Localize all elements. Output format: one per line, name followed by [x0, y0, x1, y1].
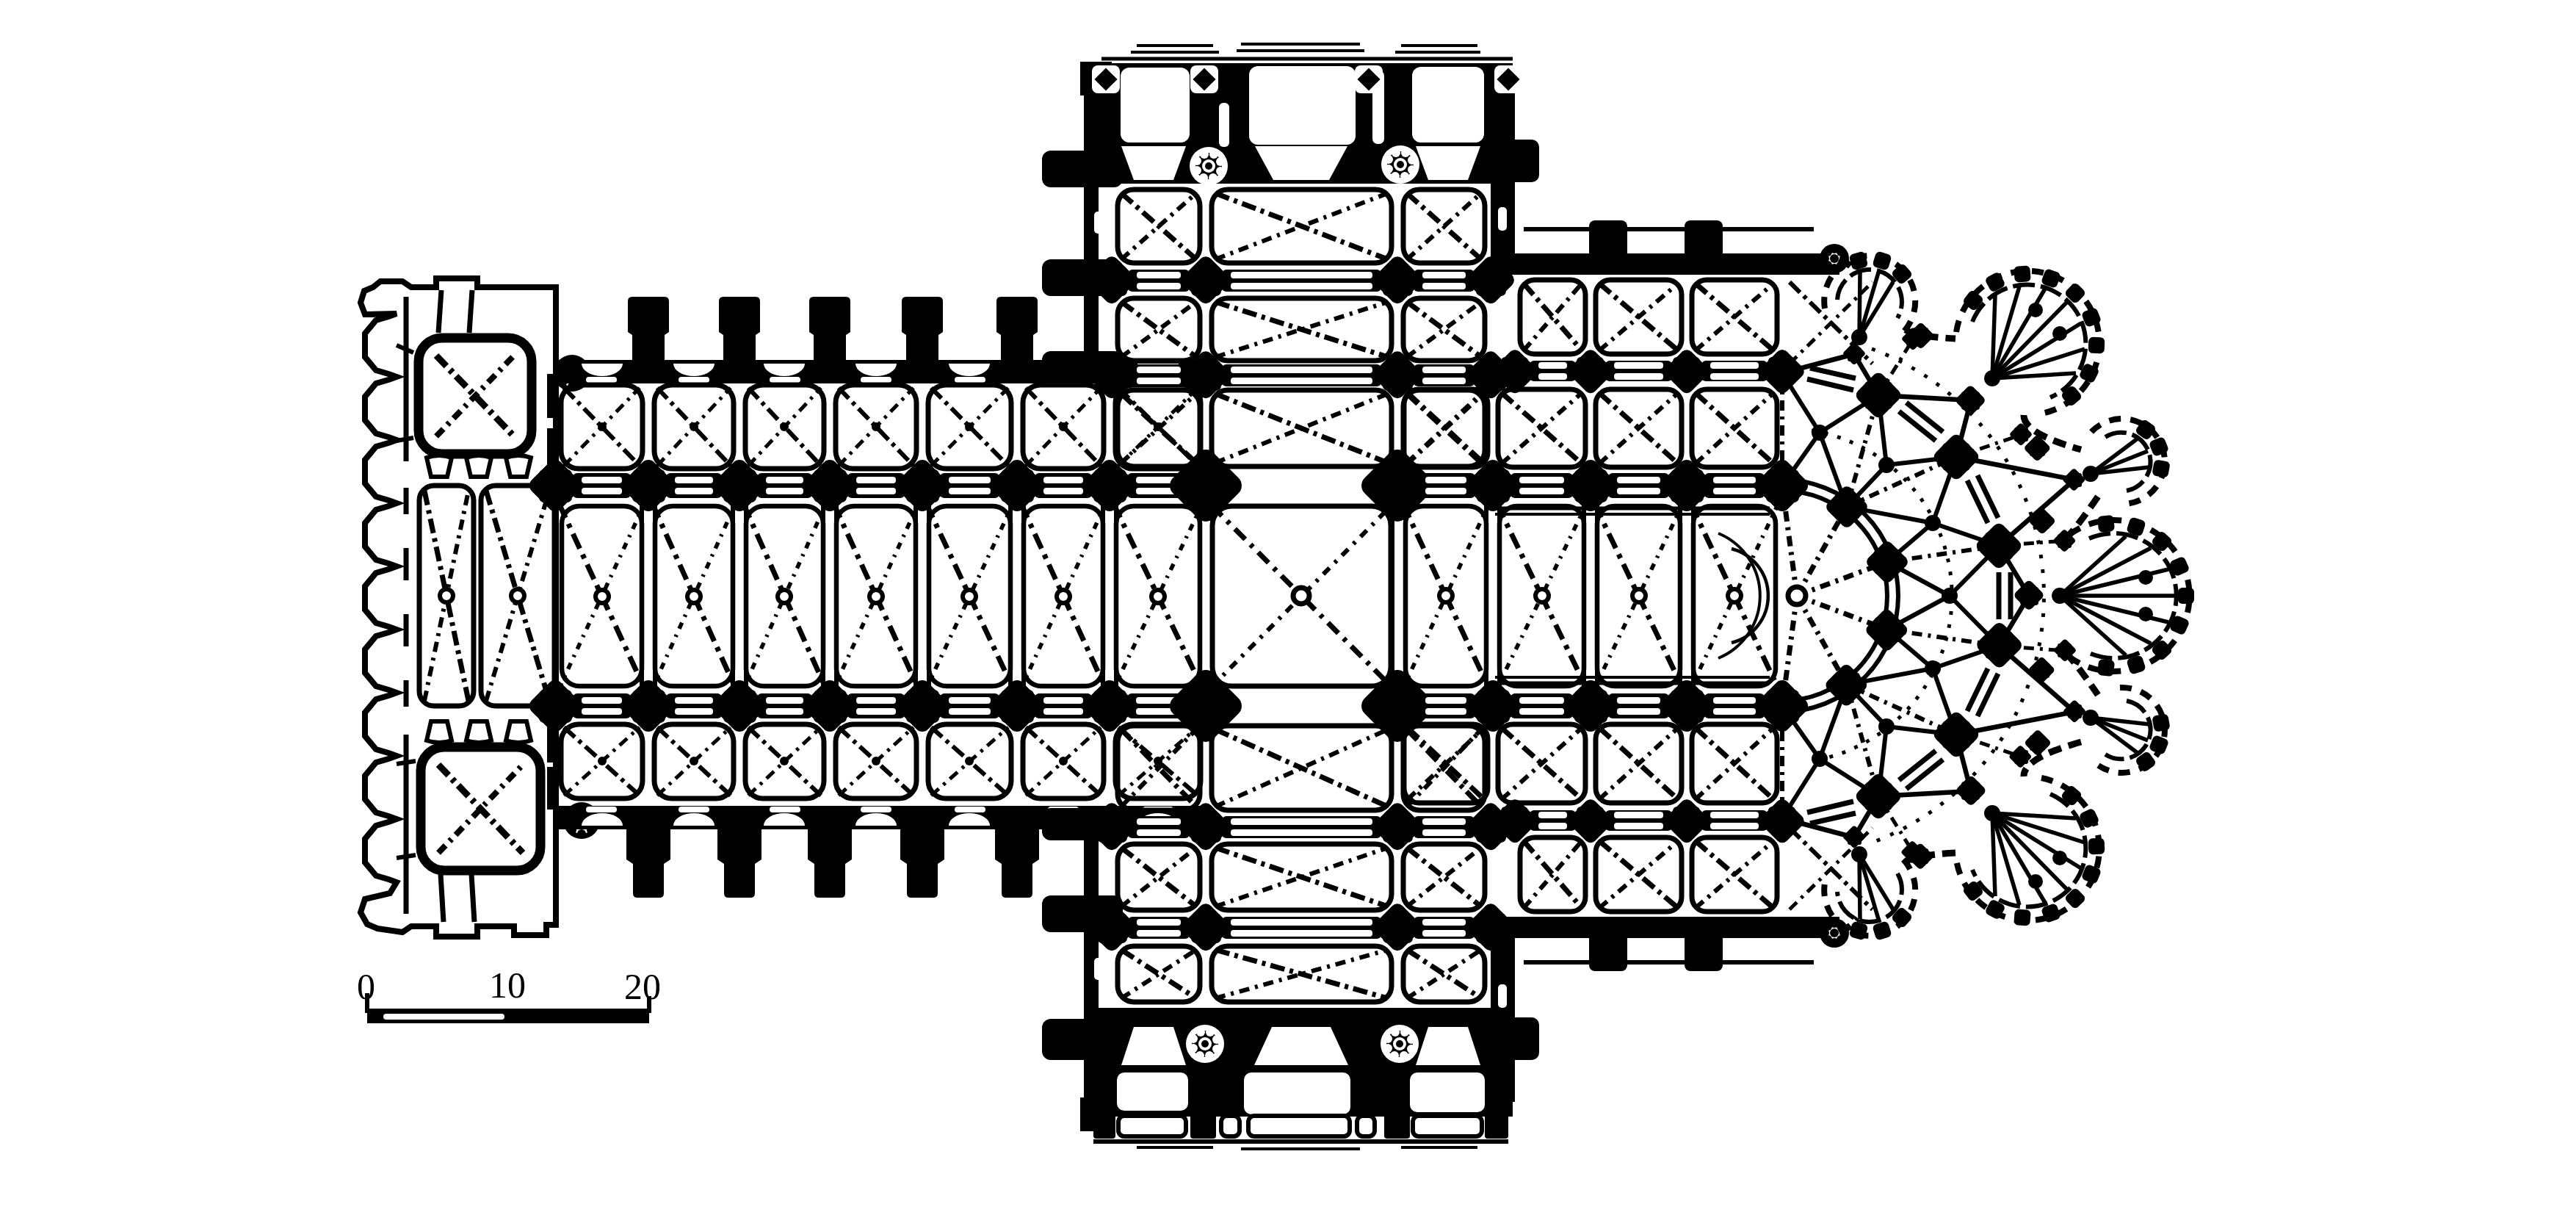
- svg-text:0: 0: [357, 966, 375, 1007]
- svg-text:20: 20: [624, 966, 661, 1007]
- svg-text:10: 10: [489, 965, 526, 1006]
